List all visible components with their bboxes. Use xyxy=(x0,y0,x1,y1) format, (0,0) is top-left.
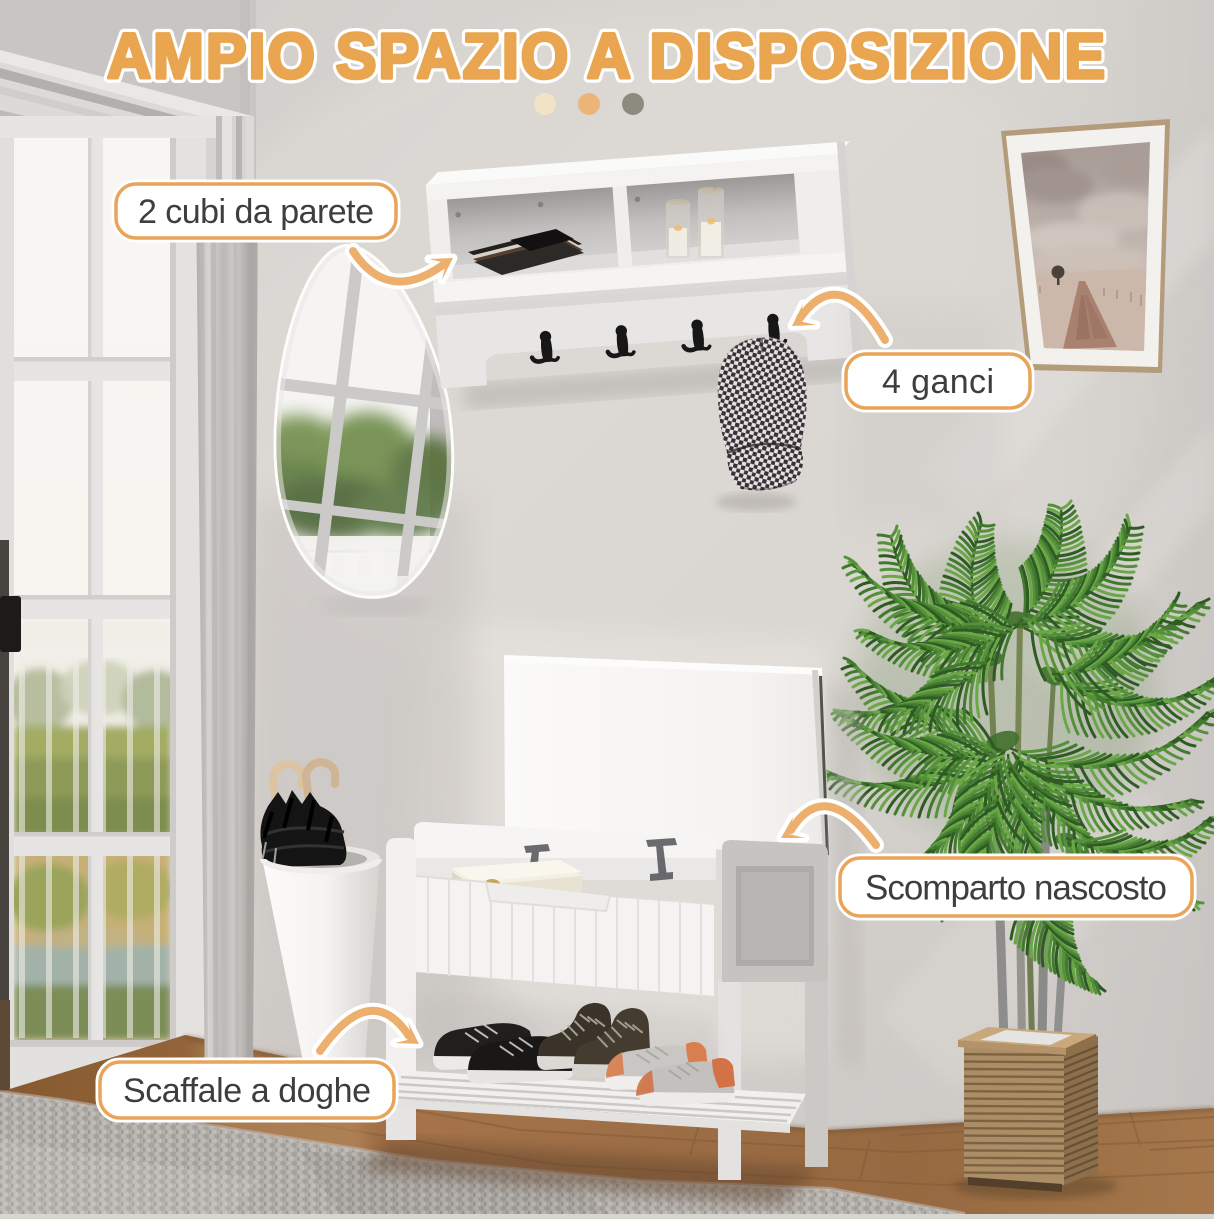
svg-text:Scaffale a doghe: Scaffale a doghe xyxy=(123,1072,371,1110)
svg-text:AMPIO SPAZIO A DISPOSIZIONE: AMPIO SPAZIO A DISPOSIZIONE xyxy=(107,20,1107,92)
svg-text:Scomparto nascosto: Scomparto nascosto xyxy=(865,869,1167,908)
svg-text:4 ganci: 4 ganci xyxy=(882,363,994,401)
svg-text:2 cubi da parete: 2 cubi da parete xyxy=(138,193,374,231)
